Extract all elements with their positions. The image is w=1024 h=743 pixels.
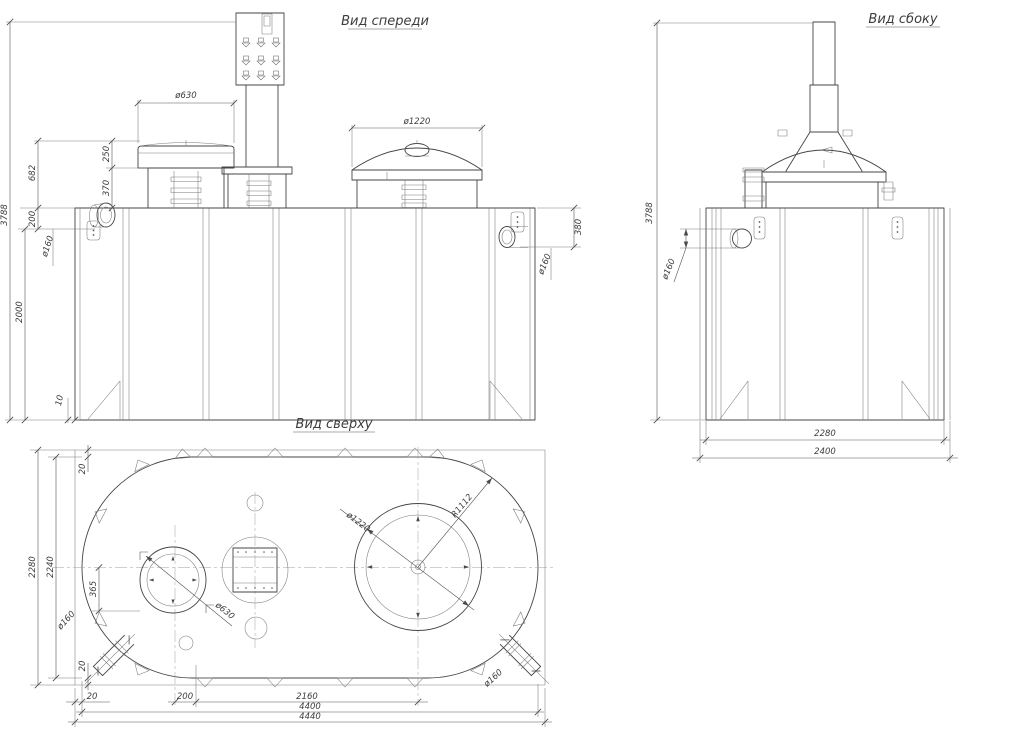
front-control-cabinet	[222, 13, 292, 208]
front-dome	[352, 140, 482, 208]
front-right-pipe	[499, 212, 528, 248]
dim-front-hatch-to-top: 682	[28, 165, 38, 181]
front-hatch	[138, 140, 234, 208]
dim-top-hatch-spacing: 2160	[296, 692, 318, 702]
top-hatch-630: ø630	[140, 547, 236, 626]
dim-top-overall-length: 4440	[299, 712, 321, 722]
dim-front-dome-dia: ø1220	[403, 117, 431, 127]
drawing-canvas: Вид спереди Вид сбоку Вид сверху	[0, 0, 1024, 743]
dim-top-dome-dia: ø1220	[343, 510, 371, 535]
dim-top-body-depth: 2240	[46, 556, 56, 578]
dim-front-pipe-right-offset: 380	[574, 219, 584, 235]
dim-top-pipe-left-dia: ø160	[55, 609, 78, 632]
dim-front-top-to-pipe: 200	[28, 211, 38, 227]
top-dome-1220: ø1220 R1112	[340, 477, 494, 631]
top-view: ø630 ø1220 R1112	[28, 445, 556, 727]
dim-top-margin-bottom: 20	[78, 661, 88, 672]
dim-side-body-width: 2280	[814, 429, 836, 439]
side-tank-body	[700, 208, 950, 420]
dim-top-pipe-offset: 365	[89, 581, 99, 597]
side-pipe	[733, 229, 752, 248]
dim-top-margin-left: 20	[87, 692, 98, 702]
top-right-pipe: ø160	[482, 628, 555, 690]
top-view-title: Вид сверху	[296, 417, 373, 432]
top-dimensions: 2280 2240 20 20 365 20 200 2160 4400 444…	[28, 445, 552, 727]
side-dome	[743, 150, 895, 208]
dim-top-dome-radius: R1112	[450, 492, 475, 520]
front-tank-body	[75, 208, 535, 420]
dim-front-pipe-left-dia: ø160	[40, 235, 56, 259]
dim-top-hatch-offset: 200	[177, 692, 193, 702]
dim-side-overall-width: 2400	[814, 447, 836, 457]
dim-top-margin-top: 20	[78, 464, 88, 475]
dim-front-hatch-dia: ø630	[174, 91, 196, 101]
front-view-title: Вид спереди	[341, 14, 429, 29]
dim-front-neck-height: 370	[102, 180, 112, 196]
front-view: 3788 2000 682 200 250 370 10 ø160 ø630 ø…	[0, 13, 584, 423]
dim-top-hatch-dia: ø630	[212, 600, 236, 622]
side-mast	[778, 22, 862, 171]
view-titles: Вид спереди Вид сбоку Вид сверху	[293, 12, 940, 432]
front-left-gusset	[88, 381, 120, 419]
dim-top-overall-depth: 2280	[28, 556, 38, 578]
dim-side-total-height: 3788	[645, 202, 655, 224]
dim-front-lid-height: 250	[102, 146, 112, 162]
side-dimensions: 3788 ø160 2280 2400	[645, 20, 958, 463]
side-view-title: Вид сбоку	[868, 12, 937, 27]
side-view: 3788 ø160 2280 2400	[645, 20, 958, 463]
dim-front-base-lip: 10	[54, 394, 66, 407]
side-right-gusset	[902, 381, 930, 419]
front-left-pipe	[87, 203, 115, 240]
dim-top-pipe-right-dia: ø160	[482, 668, 505, 690]
dim-front-total-height: 3788	[0, 204, 10, 226]
dim-front-body-height: 2000	[15, 301, 25, 323]
top-small-openings	[179, 495, 267, 650]
front-dimensions: 3788 2000 682 200 250 370 10 ø160 ø630 ø…	[0, 19, 584, 423]
side-left-gusset	[720, 381, 748, 419]
technical-drawing: Вид спереди Вид сбоку Вид сверху	[0, 0, 1024, 743]
dim-top-body-length: 4400	[299, 702, 321, 712]
side-hatch-stub	[745, 170, 762, 208]
